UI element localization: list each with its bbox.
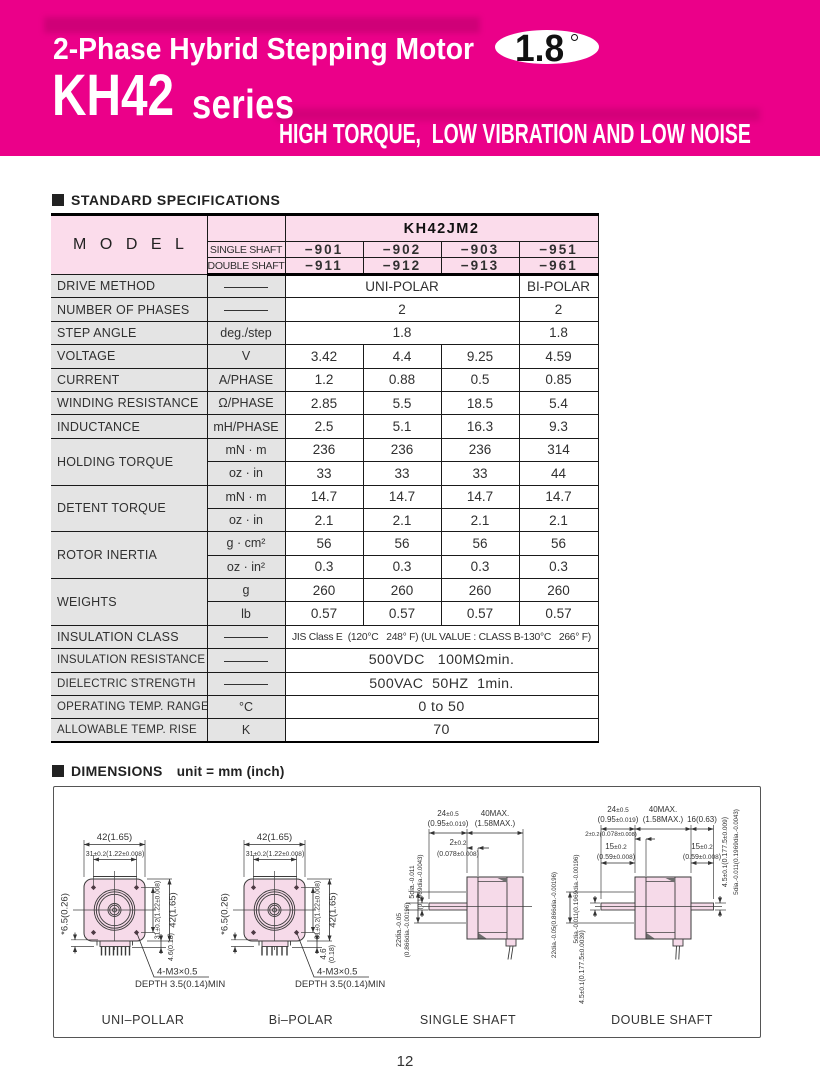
svg-text:31±0.2(1.22±0.008): 31±0.2(1.22±0.008) <box>155 881 162 940</box>
svg-text:4.6(0.18): 4.6(0.18) <box>168 933 175 961</box>
svg-text:UNI–POLLAR: UNI–POLLAR <box>102 1013 185 1027</box>
svg-text:24±0.5: 24±0.5 <box>437 809 459 818</box>
svg-text:4.5±0.1(0.177.5±0.009): 4.5±0.1(0.177.5±0.009) <box>722 817 729 887</box>
svg-text:4-M3×0.5: 4-M3×0.5 <box>317 967 357 978</box>
svg-text:22dia.-0.05: 22dia.-0.05 <box>396 913 403 947</box>
svg-text:DOUBLE SHAFT: DOUBLE SHAFT <box>611 1013 713 1027</box>
svg-text:31±0.2(1.22±0.008): 31±0.2(1.22±0.008) <box>315 881 322 940</box>
svg-text:SINGLE SHAFT: SINGLE SHAFT <box>420 1013 516 1027</box>
svg-text:Bi–POLAR: Bi–POLAR <box>269 1013 333 1027</box>
svg-text:4-M3×0.5: 4-M3×0.5 <box>157 967 197 978</box>
svg-text:(0.59±0.008): (0.59±0.008) <box>597 854 635 861</box>
svg-text:DEPTH 3.5(0.14)MIN: DEPTH 3.5(0.14)MIN <box>135 979 225 990</box>
svg-text:16(0.63): 16(0.63) <box>687 815 717 824</box>
svg-text:DEPTH 3.5(0.14)MIN: DEPTH 3.5(0.14)MIN <box>295 979 385 990</box>
svg-text:4.5±0.1(0.177.5±0.0039): 4.5±0.1(0.177.5±0.0039) <box>579 930 586 1004</box>
svg-text:(0.95±0.019): (0.95±0.019) <box>428 819 469 828</box>
svg-text:5dia.-0.011(0.1969dia.-0.0043): 5dia.-0.011(0.1969dia.-0.0043) <box>733 809 740 895</box>
svg-text:(1.58MAX.): (1.58MAX.) <box>475 819 516 828</box>
svg-text:22dia.-0.05(0.866dia.-0.00196): 22dia.-0.05(0.866dia.-0.00196) <box>551 872 558 958</box>
svg-text:42(1.65): 42(1.65) <box>328 892 339 927</box>
svg-text:24±0.5: 24±0.5 <box>607 805 629 814</box>
svg-text:*6.5(0.26): *6.5(0.26) <box>60 893 71 935</box>
svg-text:(0.078±0.008): (0.078±0.008) <box>437 851 479 858</box>
svg-text:(0.59±0.008): (0.59±0.008) <box>683 854 721 861</box>
svg-text:(0.18): (0.18) <box>329 945 336 963</box>
svg-text:42(1.65): 42(1.65) <box>168 892 179 927</box>
svg-text:31±0.2(1.22±0.008): 31±0.2(1.22±0.008) <box>86 851 145 858</box>
svg-text:15±0.2: 15±0.2 <box>605 842 627 851</box>
svg-text:(0.95±0.019): (0.95±0.019) <box>598 815 639 824</box>
svg-text:40MAX.: 40MAX. <box>481 809 509 818</box>
svg-text:2±0.2: 2±0.2 <box>449 838 466 847</box>
svg-text:5dia.-0.011: 5dia.-0.011 <box>409 865 416 899</box>
svg-text:(1.58MAX.): (1.58MAX.) <box>643 815 684 824</box>
svg-text:42(1.65): 42(1.65) <box>257 832 292 843</box>
svg-text:40MAX.: 40MAX. <box>649 805 677 814</box>
svg-text:*6.5(0.26): *6.5(0.26) <box>220 893 231 935</box>
svg-text:42(1.65): 42(1.65) <box>97 832 132 843</box>
svg-text:4.6: 4.6 <box>319 948 328 960</box>
svg-text:31±0.2(1.22±0.008): 31±0.2(1.22±0.008) <box>246 851 305 858</box>
svg-text:(0.866dia.-0.00196): (0.866dia.-0.00196) <box>404 903 411 958</box>
svg-text:2±0.2(0.078±0.008): 2±0.2(0.078±0.008) <box>585 831 637 838</box>
svg-text:15±0.2: 15±0.2 <box>691 842 713 851</box>
